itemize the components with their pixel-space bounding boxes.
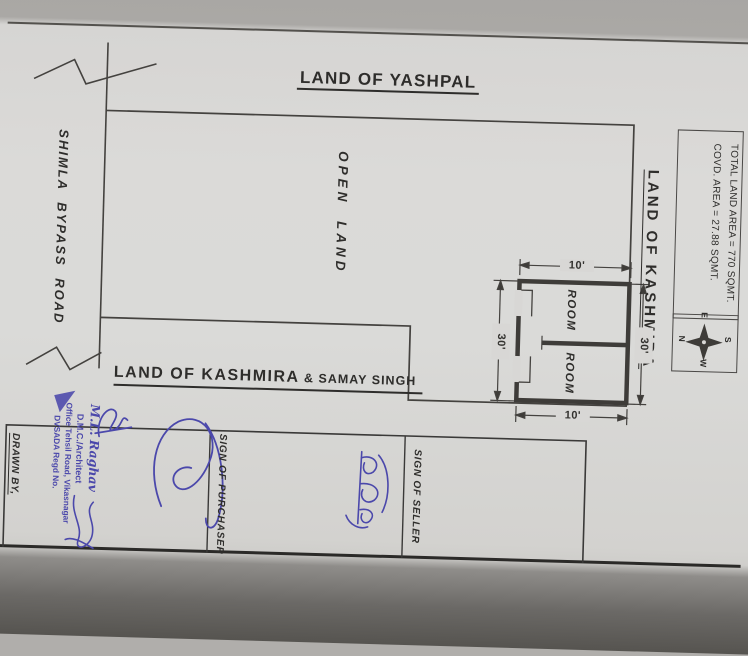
door-gap-bottom [512,356,521,382]
room-label-top: ROOM [564,289,577,337]
dim-label-top: 10' [560,259,594,272]
door-gap-top [514,290,523,316]
road-break-top [34,58,157,85]
road-line [26,40,157,371]
dim-label-left: 30' [491,323,510,359]
land-area-info-box: TOTAL LAND AREA = 770 SQMT. COVD. AREA =… [673,129,744,320]
scanned-site-plan-page: LAND OF YASHPAL SHIMLA BYPASS ROAD OPEN … [0,0,748,609]
page-bottom-edge-line [0,545,741,566]
compass-letter-left: N [677,335,687,341]
compass-letter-right: S [723,337,733,343]
page-top-edge-line [8,23,748,44]
dim-label-bottom: 10' [556,409,590,422]
road-break-bottom [26,346,102,370]
dim-label-right: 30' [634,327,653,363]
purchaser-signature [152,418,224,528]
room-divider-wall [542,343,628,345]
plot-boundary [98,110,634,406]
seller-divider [402,436,405,558]
seller-signature [346,451,389,528]
compass-letter-top: E [700,312,710,318]
architect-stamp: M.L. Raghav D.M.C./Architect Office Tehs… [29,389,104,555]
purchaser-divider [207,430,210,552]
compass-letter-bottom: W [698,359,708,367]
room-label-bottom: ROOM [562,352,575,400]
